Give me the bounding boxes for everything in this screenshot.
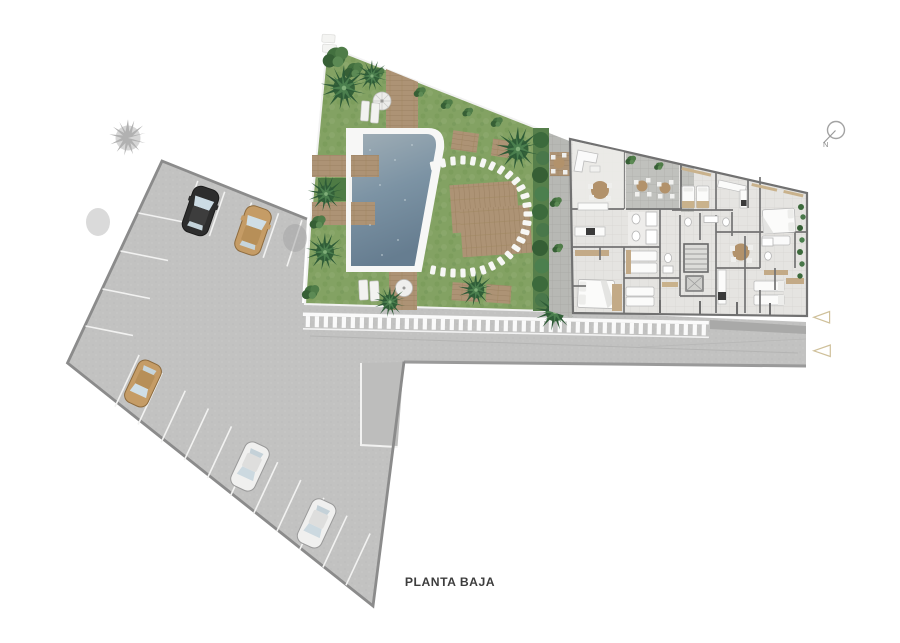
svg-text:N: N [823, 140, 828, 149]
svg-text:PLANTA BAJA: PLANTA BAJA [405, 575, 495, 589]
